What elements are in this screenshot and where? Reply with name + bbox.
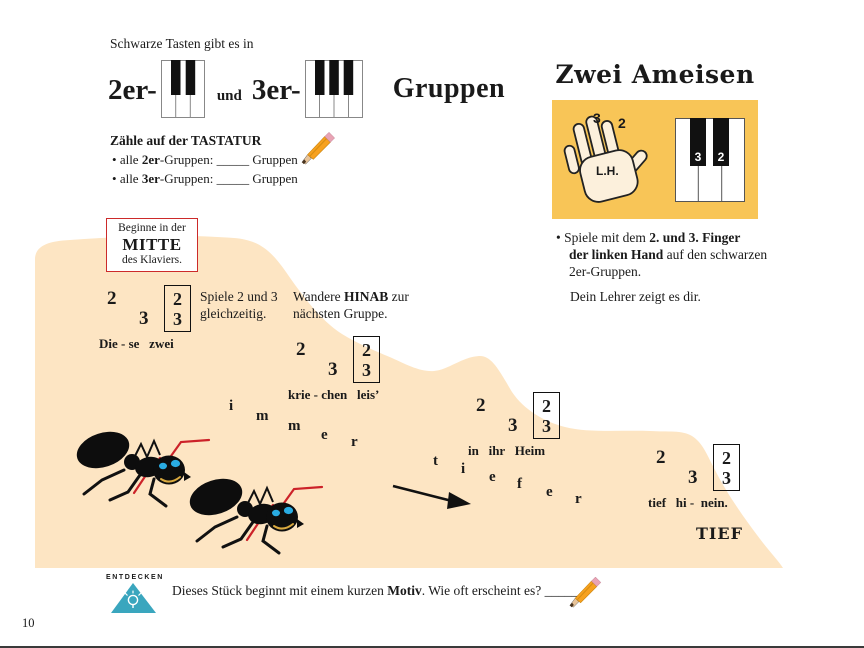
bullet-glyph: • <box>112 171 117 186</box>
finger-number: 2 <box>476 396 486 415</box>
lyrics: krie - chen leis’ <box>288 387 379 403</box>
label-2er: 2er- <box>108 76 157 105</box>
phrase-4: 2 3 2 3 tief hi - nein. <box>656 448 776 533</box>
finger-number: 3 <box>173 309 182 329</box>
caption-wander: Wandere HINAB zur nächsten Gruppe. <box>293 288 409 322</box>
count-task-item-2er: • alle 2er-Gruppen: _____ Gruppen <box>112 152 298 168</box>
scatter-letter: r <box>575 492 582 507</box>
together-box: 2 3 <box>353 336 380 383</box>
label-gruppen: Gruppen <box>393 75 505 103</box>
instr-text: Spiele mit dem <box>564 230 649 245</box>
instr-bold: der linken Hand <box>569 247 663 262</box>
playing-instruction: • Spiele mit dem 2. und 3. Finger der li… <box>556 229 806 280</box>
scatter-letter: i <box>229 399 233 414</box>
finger-number: 3 <box>508 416 518 435</box>
lyrics: Die - se zwei <box>99 336 174 352</box>
finger-number: 2 <box>656 448 666 467</box>
startbox-line2: MITTE <box>109 235 195 254</box>
finger-number: 3 <box>328 360 338 379</box>
lightbulb-triangle-icon <box>110 581 157 614</box>
scatter-letter: e <box>489 470 496 485</box>
item-text: Gruppen <box>249 152 298 167</box>
pencil-icon <box>568 573 604 609</box>
item-text: Gruppen <box>249 171 298 186</box>
item-text: alle <box>120 171 142 186</box>
lyrics: in ihr Heim <box>468 443 545 459</box>
instr-bold: 2. und 3. Finger <box>649 230 740 245</box>
finger-number: 2 <box>362 340 371 360</box>
discover-text: . Wie oft erscheint es? <box>422 583 545 598</box>
scatter-letter: e <box>321 428 328 443</box>
left-hand-icon <box>560 108 666 212</box>
hand-finger-2-label: 2 <box>618 115 626 131</box>
group-headline: 2er- und 3er- Gruppen <box>108 60 505 118</box>
item-bold: 2er <box>142 152 160 167</box>
scatter-letter: t <box>433 454 438 469</box>
item-bold: 3er <box>142 171 160 186</box>
scatter-letter: m <box>256 409 269 424</box>
scatter-letter: f <box>517 477 522 492</box>
answer-blank: _____ <box>217 171 250 186</box>
count-task-item-3er: • alle 3er-Gruppen: _____ Gruppen <box>112 171 298 187</box>
keyboard-2-black-keys-icon <box>161 60 205 118</box>
pencil-icon <box>300 128 338 166</box>
finger-number: 2 <box>173 289 182 309</box>
bullet-glyph: • <box>556 230 561 245</box>
scatter-letter: r <box>351 435 358 450</box>
discover-text: Dieses Stück beginnt mit einem kurzen <box>172 583 387 598</box>
instr-text: 2er-Gruppen. <box>569 264 641 279</box>
item-text: -Gruppen: <box>160 171 217 186</box>
item-text: -Gruppen: <box>160 152 217 167</box>
caption-text: Wandere <box>293 289 344 304</box>
answer-blank: _____ <box>217 152 250 167</box>
teacher-note: Dein Lehrer zeigt es dir. <box>570 288 820 305</box>
together-box: 2 3 <box>164 285 191 332</box>
keyboard-fingering-icon <box>675 118 745 202</box>
left-hand-label: L.H. <box>596 164 619 178</box>
finger-number: 3 <box>722 468 731 488</box>
caption-simultaneous: Spiele 2 und 3 gleichzeitig. <box>200 288 278 322</box>
finger-number: 2 <box>296 340 306 359</box>
instr-text: auf den schwarzen <box>663 247 767 262</box>
finger-number: 2 <box>542 396 551 416</box>
lyrics: tief hi - nein. <box>648 495 728 511</box>
finger-number: 3 <box>139 309 149 328</box>
discover-question: Dieses Stück beginnt mit einem kurzen Mo… <box>172 583 578 599</box>
caption-text: Spiele 2 und 3 <box>200 289 278 304</box>
key-finger-3-label: 3 <box>691 150 705 164</box>
hand-position-card: 3 2 L.H. 3 2 <box>552 100 758 219</box>
startbox-line1: Beginne in der <box>109 222 195 235</box>
start-position-box: Beginne in der MITTE des Klaviers. <box>106 218 198 272</box>
finger-number: 2 <box>722 448 731 468</box>
caption-text: gleichzeitig. <box>200 306 266 321</box>
book-page: Schwarze Tasten gibt es in 2er- und 3er-… <box>0 0 864 648</box>
label-und: und <box>217 88 242 105</box>
keyboard-3-black-keys-icon <box>305 60 363 118</box>
item-text: alle <box>120 152 142 167</box>
piece-title: Zwei Ameisen <box>552 60 758 89</box>
discover-bold: Motiv <box>387 583 422 598</box>
finger-number: 3 <box>542 416 551 436</box>
finger-number: 3 <box>688 468 698 487</box>
label-3er: 3er- <box>252 76 301 105</box>
startbox-line3: des Klaviers. <box>109 254 195 267</box>
scatter-letter: m <box>288 419 301 434</box>
key-finger-2-label: 2 <box>714 150 728 164</box>
caption-bold: HINAB <box>344 289 388 304</box>
page-number: 10 <box>22 616 35 631</box>
intro-line: Schwarze Tasten gibt es in <box>110 36 254 52</box>
scatter-letter: i <box>461 462 465 477</box>
hand-finger-3-label: 3 <box>593 110 601 126</box>
together-box: 2 3 <box>533 392 560 439</box>
count-task-title: Zähle auf der TASTATUR <box>110 133 261 149</box>
together-box: 2 3 <box>713 444 740 491</box>
entdecken-logo-word: ENTDECKEN <box>106 574 164 581</box>
phrase-2: 2 3 2 3 krie - chen leis’ <box>296 340 416 425</box>
finger-number: 2 <box>107 289 117 308</box>
scatter-letter: e <box>546 485 553 500</box>
tief-label: TIEF <box>696 524 743 543</box>
caption-text: nächsten Gruppe. <box>293 306 387 321</box>
finger-number: 3 <box>362 360 371 380</box>
caption-text: zur <box>388 289 409 304</box>
bullet-glyph: • <box>112 152 117 167</box>
